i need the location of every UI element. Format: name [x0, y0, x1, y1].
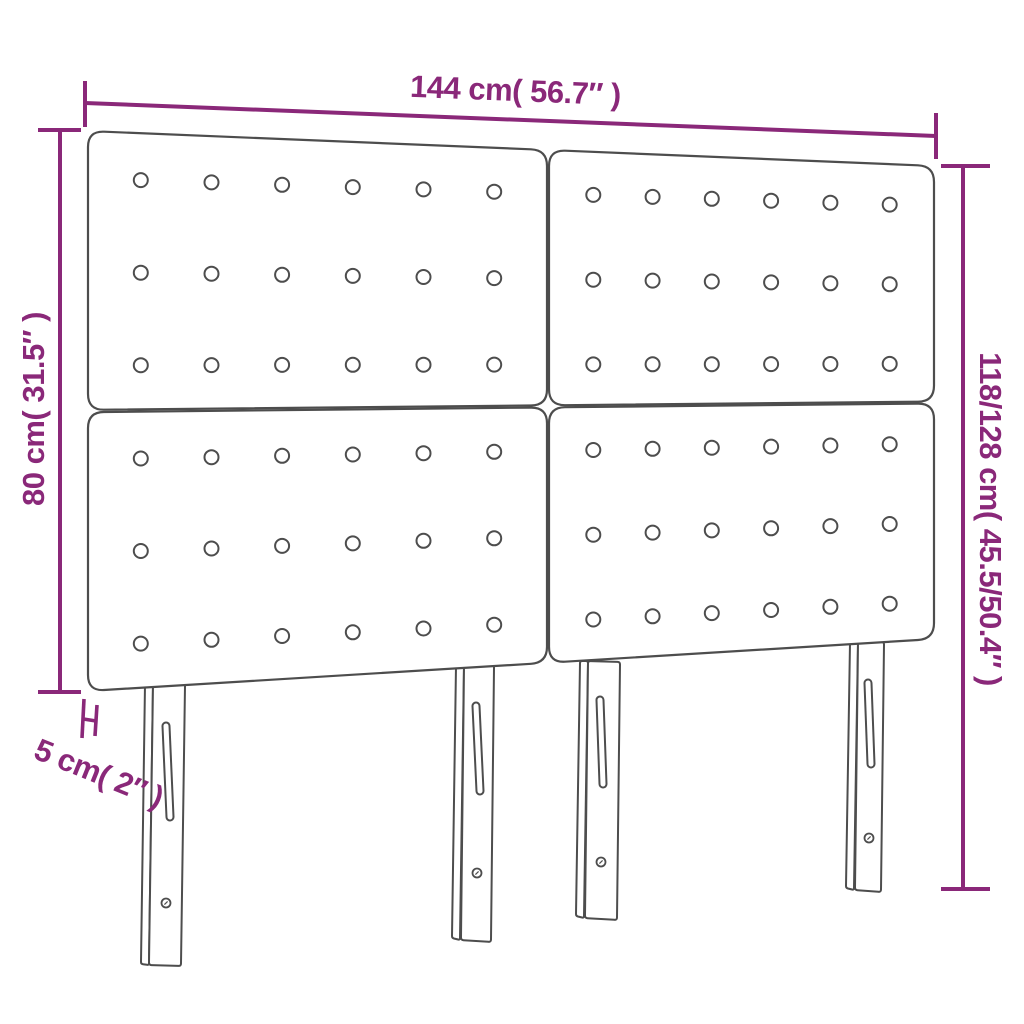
- headboard-panels: [88, 132, 934, 690]
- tufting-button: [275, 449, 289, 463]
- tufting-button: [646, 274, 660, 288]
- tufting-button: [346, 269, 360, 283]
- tufting-button: [205, 267, 219, 281]
- tufting-button: [823, 357, 837, 371]
- tufting-button: [586, 528, 600, 542]
- tufting-button: [417, 358, 431, 372]
- tufting-button: [487, 445, 501, 459]
- tufting-button: [205, 633, 219, 647]
- panel-bottom-left: [88, 408, 547, 690]
- tufting-button: [883, 597, 897, 611]
- headboard-leg-4: [846, 641, 884, 892]
- tufting-button: [487, 185, 501, 199]
- tufting-button: [764, 275, 778, 289]
- tufting-button: [417, 446, 431, 460]
- tufting-button: [883, 437, 897, 451]
- tufting-button: [705, 606, 719, 620]
- tufting-button: [134, 266, 148, 280]
- tufting-button: [883, 357, 897, 371]
- tufting-button: [275, 178, 289, 192]
- width-dimension-label: 144 cm( 56.7″ ): [409, 69, 621, 112]
- tufting-button: [487, 358, 501, 372]
- tufting-button: [417, 622, 431, 636]
- tufting-button: [646, 357, 660, 371]
- tufting-button: [883, 198, 897, 212]
- tufting-button: [586, 273, 600, 287]
- tufting-button: [205, 450, 219, 464]
- tufting-button: [823, 439, 837, 453]
- tufting-button: [487, 618, 501, 632]
- tufting-button: [134, 358, 148, 372]
- tufting-button: [705, 523, 719, 537]
- thickness-mark-connector: [84, 719, 97, 721]
- panel-face: [88, 132, 547, 410]
- headboard-dimension-diagram: 144 cm( 56.7″ ) 80 cm( 31.5″ ) 118/128 c…: [0, 0, 1024, 1024]
- tufting-button: [134, 173, 148, 187]
- height-left-dimension-label: 80 cm( 31.5″ ): [16, 312, 51, 506]
- tufting-button: [275, 268, 289, 282]
- tufting-button: [764, 194, 778, 208]
- tufting-button: [705, 192, 719, 206]
- panel-face: [88, 408, 547, 690]
- panel-top-right: [549, 151, 934, 406]
- tufting-button: [646, 190, 660, 204]
- tufting-button: [417, 182, 431, 196]
- tufting-button: [823, 276, 837, 290]
- tufting-button: [586, 443, 600, 457]
- leg-slot-inner: [600, 700, 603, 784]
- tufting-button: [417, 270, 431, 284]
- tufting-button: [764, 357, 778, 371]
- tufting-button: [646, 609, 660, 623]
- headboard-leg-3: [576, 661, 620, 920]
- tufting-button: [823, 519, 837, 533]
- thickness-mark: [82, 699, 97, 738]
- headboard-leg-2: [452, 664, 494, 942]
- tufting-button: [646, 526, 660, 540]
- tufting-button: [487, 531, 501, 545]
- height-right-dimension-label: 118/128 cm( 45.5/50.4″ ): [973, 352, 1008, 686]
- diagram-canvas: 144 cm( 56.7″ ) 80 cm( 31.5″ ) 118/128 c…: [0, 0, 1024, 1024]
- tufting-button: [346, 180, 360, 194]
- headboard: [88, 132, 934, 966]
- tufting-button: [275, 539, 289, 553]
- tufting-button: [586, 613, 600, 627]
- tufting-button: [764, 521, 778, 535]
- tufting-button: [764, 603, 778, 617]
- tufting-button: [487, 271, 501, 285]
- tufting-button: [205, 175, 219, 189]
- tufting-button: [823, 600, 837, 614]
- headboard-leg-1: [141, 682, 185, 966]
- tufting-button: [134, 637, 148, 651]
- tufting-button: [205, 542, 219, 556]
- tufting-button: [275, 358, 289, 372]
- tufting-button: [346, 536, 360, 550]
- tufting-button: [586, 188, 600, 202]
- headboard-legs: [141, 641, 884, 966]
- panel-face: [549, 404, 934, 662]
- tufting-button: [134, 544, 148, 558]
- tufting-button: [646, 442, 660, 456]
- tufting-button: [705, 275, 719, 289]
- tufting-button: [346, 625, 360, 639]
- tufting-button: [417, 534, 431, 548]
- tufting-button: [275, 629, 289, 643]
- panel-face: [549, 151, 934, 406]
- tufting-button: [705, 441, 719, 455]
- leg-slot-inner: [868, 683, 871, 764]
- tufting-button: [346, 448, 360, 462]
- tufting-button: [705, 357, 719, 371]
- tufting-button: [883, 517, 897, 531]
- panel-top-left: [88, 132, 547, 410]
- tufting-button: [586, 357, 600, 371]
- tufting-button: [823, 196, 837, 210]
- tufting-button: [205, 358, 219, 372]
- tufting-button: [346, 358, 360, 372]
- panel-bottom-right: [549, 404, 934, 662]
- tufting-button: [764, 440, 778, 454]
- tufting-button: [883, 277, 897, 291]
- width-dimension-main-line: [85, 103, 936, 136]
- tufting-button: [134, 452, 148, 466]
